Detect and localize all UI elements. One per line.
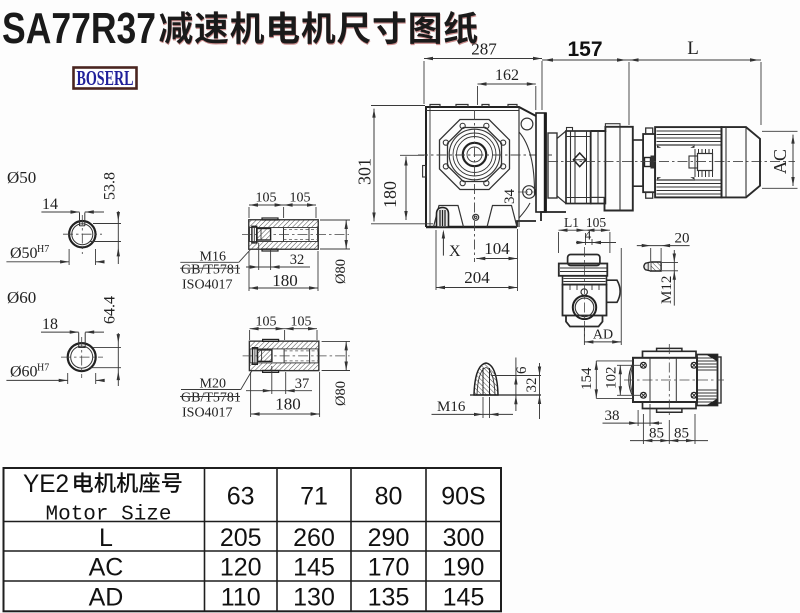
- svg-text:102: 102: [604, 367, 620, 390]
- svg-text:ISO4017: ISO4017: [182, 278, 233, 293]
- svg-text:32: 32: [290, 252, 305, 268]
- svg-text:162: 162: [495, 67, 519, 84]
- svg-text:130: 130: [293, 584, 335, 612]
- svg-text:L1: L1: [564, 215, 579, 230]
- svg-text:GB/T5781: GB/T5781: [181, 263, 241, 278]
- svg-text:204: 204: [464, 268, 490, 287]
- svg-text:L: L: [99, 524, 113, 552]
- svg-text:205: 205: [220, 524, 262, 552]
- svg-text:37: 37: [295, 376, 310, 392]
- svg-text:M16: M16: [437, 399, 466, 415]
- svg-text:X: X: [449, 243, 461, 260]
- svg-text:105: 105: [290, 191, 311, 206]
- svg-text:110: 110: [221, 584, 261, 612]
- svg-text:190: 190: [443, 554, 485, 582]
- svg-text:Ø80: Ø80: [333, 259, 349, 284]
- svg-text:105: 105: [256, 191, 277, 206]
- svg-text:53.8: 53.8: [102, 172, 119, 200]
- svg-text:120: 120: [220, 554, 262, 582]
- svg-text:YE2: YE2: [23, 470, 69, 498]
- svg-text:85: 85: [674, 426, 689, 442]
- svg-text:64.4: 64.4: [102, 296, 119, 324]
- svg-text:104: 104: [484, 239, 510, 258]
- svg-text:AC: AC: [89, 554, 124, 582]
- svg-text:180: 180: [272, 271, 298, 290]
- svg-text:BOSERL: BOSERL: [77, 66, 134, 90]
- svg-text:Ø80: Ø80: [333, 381, 349, 406]
- svg-text:AD: AD: [89, 584, 124, 612]
- svg-text:300: 300: [443, 524, 485, 552]
- svg-text:L: L: [687, 38, 699, 59]
- svg-text:180: 180: [275, 395, 301, 414]
- svg-text:180: 180: [380, 181, 400, 208]
- svg-text:32: 32: [524, 378, 540, 393]
- svg-text:290: 290: [368, 524, 410, 552]
- svg-text:H7: H7: [37, 244, 49, 255]
- svg-text:M12: M12: [659, 276, 675, 304]
- svg-text:170: 170: [368, 554, 410, 582]
- svg-text:145: 145: [293, 554, 335, 582]
- svg-text:260: 260: [293, 524, 335, 552]
- svg-text:4: 4: [585, 228, 592, 243]
- svg-text:63: 63: [227, 483, 255, 511]
- svg-text:71: 71: [300, 483, 328, 511]
- svg-text:AC: AC: [770, 149, 790, 174]
- svg-text:20: 20: [675, 231, 690, 247]
- svg-text:Ø60: Ø60: [10, 364, 38, 381]
- svg-text:105: 105: [256, 315, 277, 330]
- svg-text:80: 80: [375, 483, 403, 511]
- svg-text:Ø50: Ø50: [7, 168, 36, 187]
- svg-text:38: 38: [605, 408, 620, 424]
- svg-text:GB/T5781: GB/T5781: [181, 391, 241, 406]
- svg-text:AD: AD: [593, 328, 613, 343]
- svg-text:ISO4017: ISO4017: [182, 406, 233, 421]
- svg-text:105: 105: [291, 315, 312, 330]
- svg-text:14: 14: [42, 196, 58, 213]
- svg-text:90S: 90S: [441, 483, 485, 511]
- svg-text:301: 301: [355, 158, 375, 185]
- svg-text:135: 135: [368, 584, 410, 612]
- svg-text:6: 6: [514, 366, 530, 374]
- svg-text:287: 287: [471, 40, 497, 59]
- svg-text:34: 34: [502, 189, 518, 205]
- svg-text:154: 154: [579, 367, 595, 390]
- svg-text:SA77R37: SA77R37: [2, 4, 156, 53]
- svg-text:18: 18: [42, 316, 58, 333]
- svg-text:145: 145: [443, 584, 485, 612]
- svg-text:85: 85: [649, 426, 664, 442]
- svg-text:Ø50: Ø50: [10, 245, 38, 262]
- svg-text:H7: H7: [37, 363, 49, 374]
- svg-text:Ø60: Ø60: [7, 288, 36, 307]
- svg-text:157: 157: [567, 38, 602, 61]
